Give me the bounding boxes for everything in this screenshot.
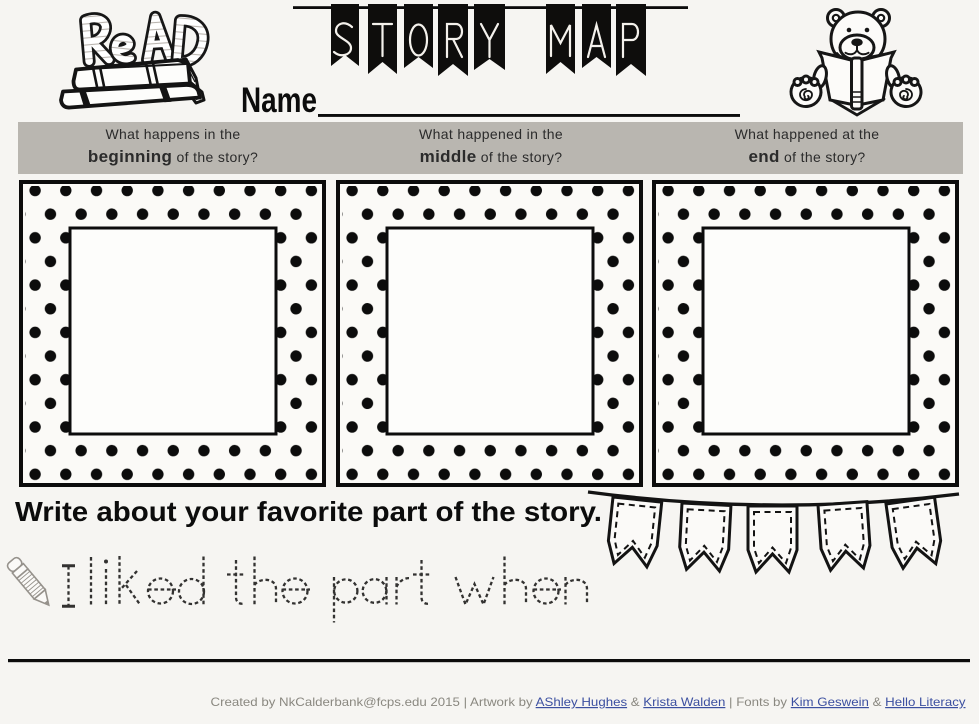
svg-text:middle of the story?: middle of the story? (420, 147, 563, 166)
svg-text:Write about your favorite part: Write about your favorite part of the st… (15, 496, 602, 527)
svg-text:Name: Name (241, 81, 317, 120)
svg-text:What happens in the: What happens in the (105, 126, 240, 142)
svg-text:beginning of the story?: beginning of the story? (88, 147, 258, 166)
svg-text:What happened at the: What happened at the (735, 126, 880, 142)
svg-text:Created by NkCalderbank@fcps.e: Created by NkCalderbank@fcps.edu 2015 | … (210, 695, 965, 709)
svg-text:end of the story?: end of the story? (748, 147, 865, 166)
svg-text:What happened in the: What happened in the (419, 126, 563, 142)
